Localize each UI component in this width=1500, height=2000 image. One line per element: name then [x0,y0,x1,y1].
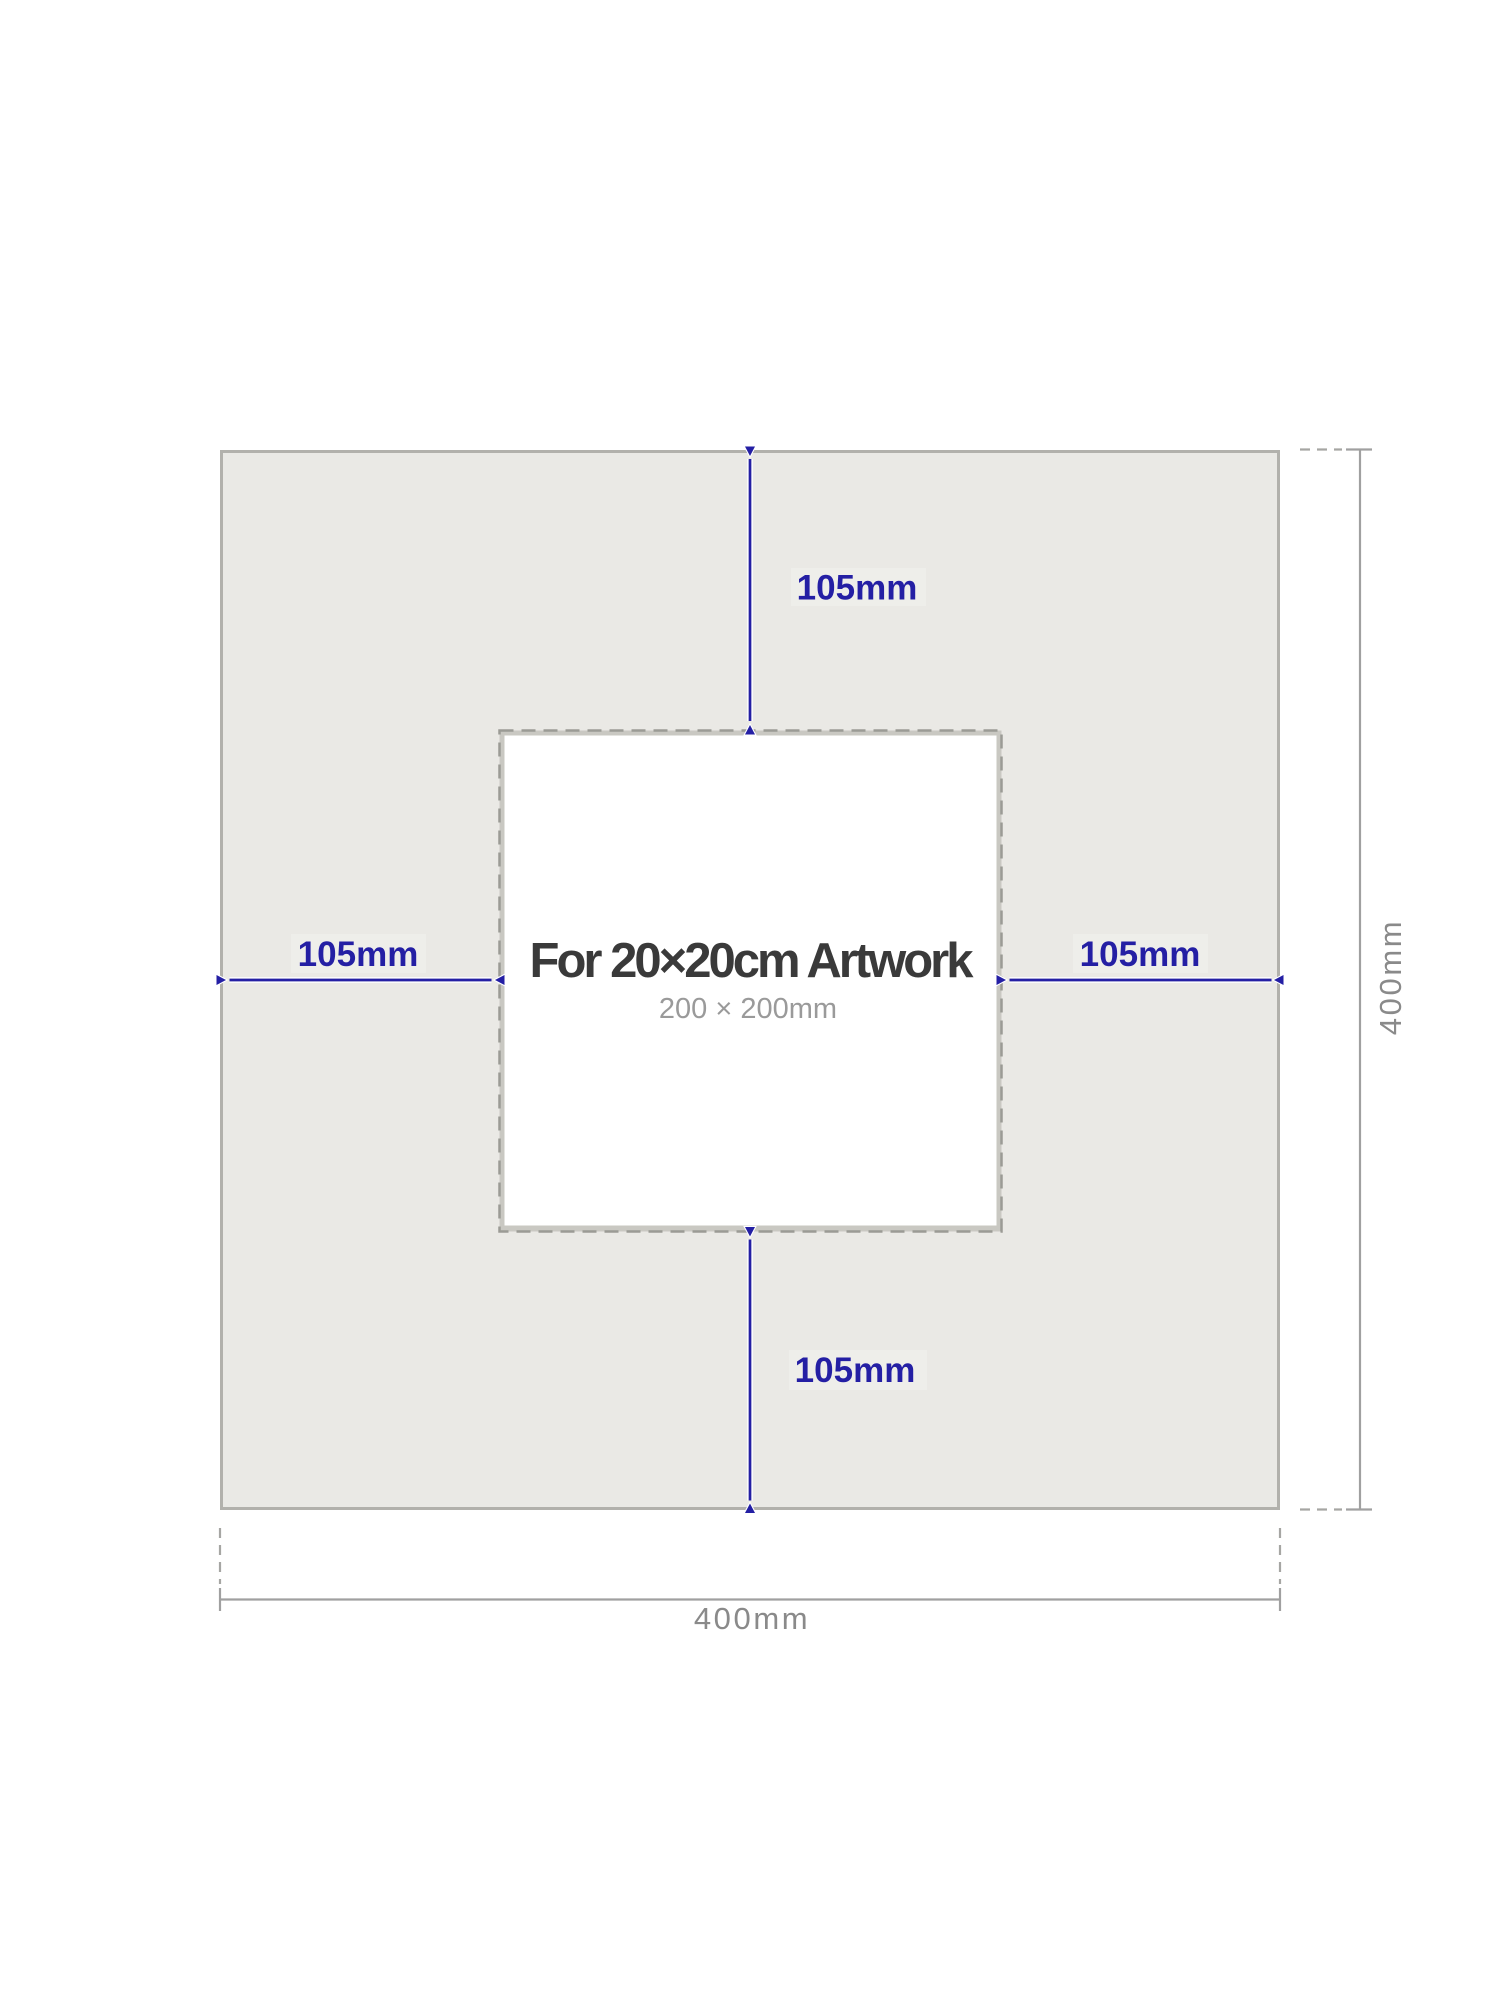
svg-text:400mm: 400mm [694,1601,810,1636]
svg-text:105mm: 105mm [797,569,918,608]
svg-text:105mm: 105mm [1080,935,1201,974]
svg-text:105mm: 105mm [298,935,419,974]
svg-text:200 × 200mm: 200 × 200mm [659,993,837,1025]
svg-text:105mm: 105mm [795,1351,916,1390]
svg-text:For 20×20cm Artwork: For 20×20cm Artwork [530,934,975,988]
svg-text:400mm: 400mm [1373,919,1408,1035]
